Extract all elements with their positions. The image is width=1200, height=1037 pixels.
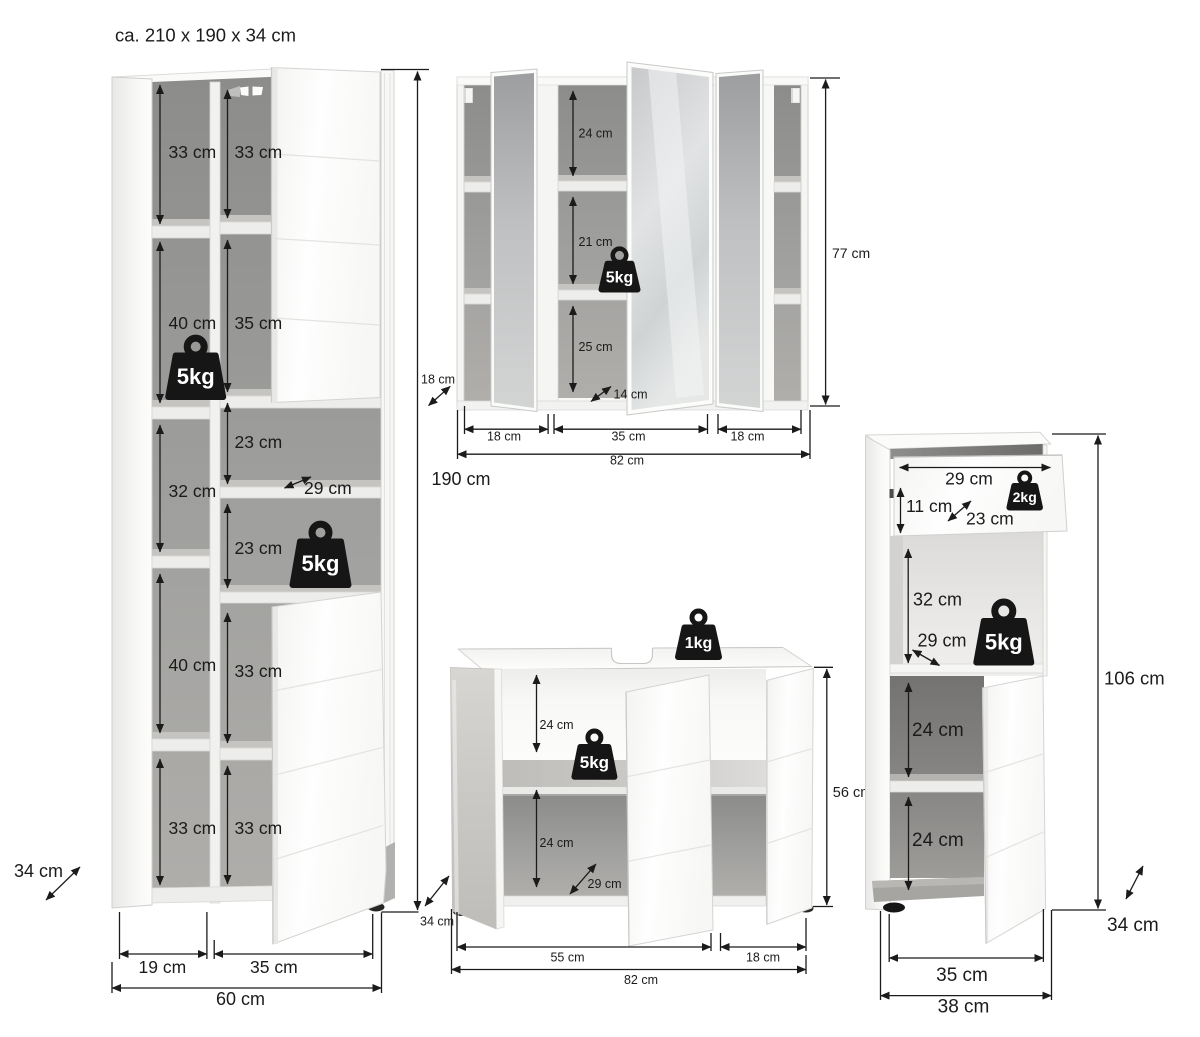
- svg-text:40 cm: 40 cm: [169, 655, 217, 675]
- svg-text:34 cm: 34 cm: [14, 861, 63, 881]
- svg-text:25 cm: 25 cm: [579, 340, 613, 354]
- svg-text:23 cm: 23 cm: [235, 538, 283, 558]
- svg-text:23 cm: 23 cm: [966, 509, 1014, 529]
- svg-text:40 cm: 40 cm: [169, 313, 217, 333]
- svg-text:34 cm: 34 cm: [1107, 915, 1159, 936]
- svg-text:35 cm: 35 cm: [611, 430, 645, 444]
- svg-text:35 cm: 35 cm: [250, 957, 298, 977]
- svg-text:33 cm: 33 cm: [235, 142, 283, 162]
- svg-text:18 cm: 18 cm: [487, 430, 521, 444]
- svg-text:11 cm: 11 cm: [906, 496, 952, 516]
- svg-text:19 cm: 19 cm: [139, 957, 187, 977]
- svg-text:18 cm: 18 cm: [421, 373, 455, 387]
- svg-text:29 cm: 29 cm: [304, 478, 352, 498]
- svg-text:5kg: 5kg: [302, 551, 340, 576]
- svg-text:34 cm: 34 cm: [420, 915, 454, 929]
- svg-text:5kg: 5kg: [580, 753, 609, 772]
- svg-text:1kg: 1kg: [685, 635, 713, 652]
- svg-text:24 cm: 24 cm: [540, 836, 574, 850]
- svg-text:24 cm: 24 cm: [540, 718, 574, 732]
- svg-text:33 cm: 33 cm: [169, 818, 217, 838]
- svg-text:5kg: 5kg: [985, 630, 1023, 655]
- svg-text:33 cm: 33 cm: [235, 661, 283, 681]
- svg-text:24 cm: 24 cm: [579, 127, 613, 141]
- svg-text:2kg: 2kg: [1013, 489, 1037, 505]
- svg-text:29 cm: 29 cm: [945, 469, 993, 489]
- svg-text:190 cm: 190 cm: [432, 469, 491, 489]
- svg-text:33 cm: 33 cm: [169, 142, 217, 162]
- svg-text:23 cm: 23 cm: [235, 432, 283, 452]
- svg-text:32 cm: 32 cm: [169, 481, 217, 501]
- svg-text:21 cm: 21 cm: [579, 235, 613, 249]
- svg-text:35 cm: 35 cm: [235, 313, 283, 333]
- svg-text:5kg: 5kg: [177, 364, 215, 389]
- svg-text:33 cm: 33 cm: [235, 818, 283, 838]
- svg-text:ca. 210 x 190 x 34 cm: ca. 210 x 190 x 34 cm: [115, 25, 296, 46]
- svg-text:38 cm: 38 cm: [938, 997, 990, 1018]
- svg-text:18 cm: 18 cm: [730, 430, 764, 444]
- svg-text:82 cm: 82 cm: [610, 454, 644, 468]
- svg-text:18 cm: 18 cm: [746, 951, 780, 965]
- svg-text:106 cm: 106 cm: [1104, 668, 1165, 689]
- svg-text:14 cm: 14 cm: [614, 388, 648, 402]
- svg-text:55 cm: 55 cm: [550, 951, 584, 965]
- svg-text:35 cm: 35 cm: [936, 965, 988, 986]
- svg-text:5kg: 5kg: [606, 269, 634, 286]
- svg-text:29 cm: 29 cm: [588, 877, 622, 891]
- svg-text:29 cm: 29 cm: [918, 631, 967, 651]
- svg-text:24 cm: 24 cm: [912, 830, 964, 851]
- svg-text:60 cm: 60 cm: [216, 989, 265, 1009]
- svg-text:32 cm: 32 cm: [913, 590, 962, 610]
- svg-text:77 cm: 77 cm: [832, 245, 870, 261]
- svg-text:82 cm: 82 cm: [624, 973, 658, 987]
- svg-text:24 cm: 24 cm: [912, 720, 964, 741]
